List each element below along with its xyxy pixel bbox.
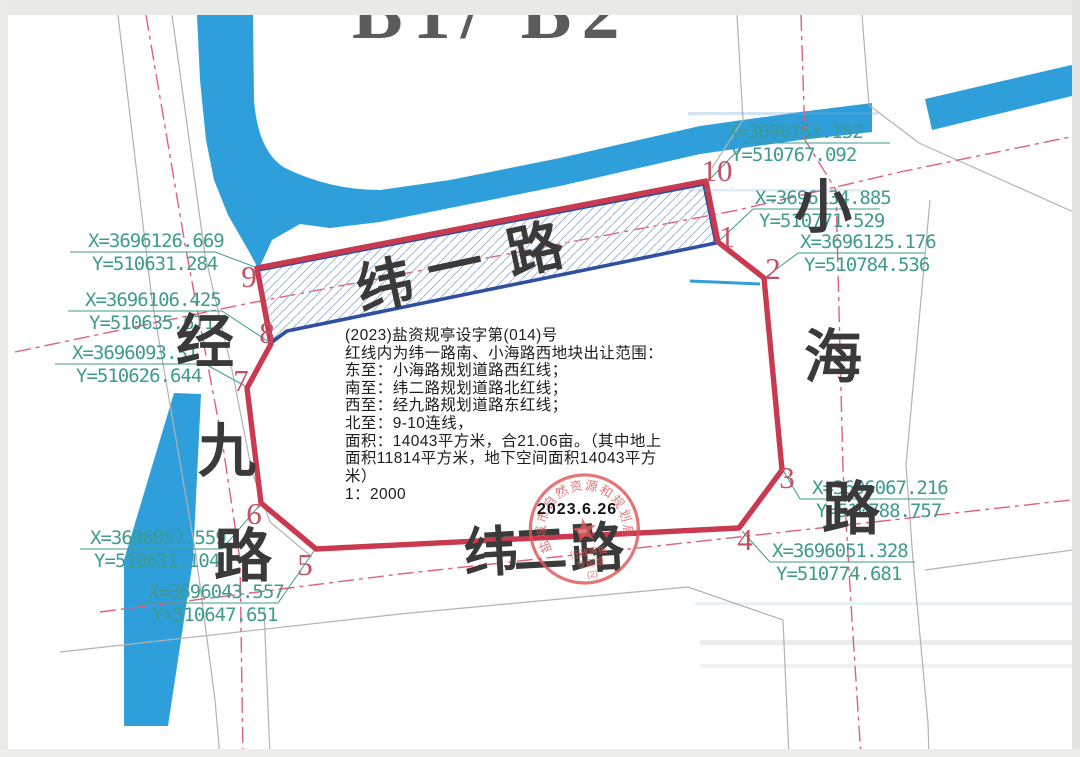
boundary-west: 西至：经九路规划道路东红线； <box>345 397 755 415</box>
official-seal: ★ 盐城市自然资源和规划局 行政审批 专用章 (2) <box>514 457 653 596</box>
coord-y-p10: Y=510767.092 <box>731 144 856 166</box>
vertex-number-p1: 1 <box>719 219 735 254</box>
vertex-number-p4: 4 <box>737 522 753 557</box>
coord-y-p2: Y=510784.536 <box>804 254 930 276</box>
road-label-south-char1: 纬 <box>463 525 520 582</box>
road-label-east-char1: 小 <box>794 179 852 237</box>
coord-y-p4: Y=510774.681 <box>776 563 902 585</box>
coord-x-p8: X=3696106.425 <box>85 289 221 311</box>
vertex-number-p5: 5 <box>297 547 313 582</box>
river-fragment <box>690 281 760 284</box>
coord-x-p10: X=3696153.152 <box>727 121 863 143</box>
road-label-north-char1: 纬 <box>352 253 418 319</box>
area-line-2: 面积11814平方米，地下空间面积14043平方 <box>345 450 755 468</box>
area-line-1: 面积：14043平方米，合21.06亩。（其中地上 <box>345 433 755 451</box>
road-label-west-char2: 九 <box>198 423 256 481</box>
plan-map-page: X=3696153.152Y=510767.092X=3696134.885Y=… <box>0 0 1080 757</box>
scan-margin-top <box>0 0 1080 15</box>
boundary-east: 东至：小海路规划道路西红线； <box>345 362 755 380</box>
river-northeast <box>925 63 1080 130</box>
road-label-north-char3: 路 <box>502 217 568 283</box>
vertex-number-p3: 3 <box>779 460 795 495</box>
vertex-number-p8: 8 <box>259 315 275 350</box>
road-edge-west-3 <box>264 608 270 757</box>
vertex-number-p2: 2 <box>765 251 781 286</box>
road-label-east-char3: 路 <box>822 481 880 539</box>
vertex-number-p7: 7 <box>233 363 249 398</box>
vertex-number-p10: 10 <box>702 153 733 188</box>
road-label-west-char3: 路 <box>214 528 272 586</box>
coord-x-p6: X=3696057.559 <box>90 527 226 549</box>
coord-x-p4: X=3696051.328 <box>772 540 908 562</box>
document-number: (2023)盐资规亭设字第(014)号 <box>345 327 755 345</box>
approval-date: 2023.6.26 <box>537 501 617 519</box>
road-label-west-char1: 经 <box>176 314 234 372</box>
scan-margin-right <box>1072 0 1080 757</box>
scan-margin-left <box>0 0 8 757</box>
scan-margin-bottom <box>0 749 1080 757</box>
coord-x-p9: X=3696126.669 <box>88 230 224 252</box>
road-label-north-char2: 一 <box>422 234 488 300</box>
coord-y-p5: Y=510647.651 <box>152 604 278 626</box>
road-edge-south-2 <box>925 549 1080 570</box>
coord-y-p9: Y=510631.284 <box>92 253 218 275</box>
boundary-south: 南至：纬二路规划道路北红线； <box>345 380 755 398</box>
coord-y-p6: Y=510631.104 <box>94 550 220 572</box>
road-label-east-char2: 海 <box>804 329 862 387</box>
redline-intro: 红线内为纬一路南、小海路西地块出让范围： <box>345 345 755 363</box>
seal-number: (2) <box>586 568 599 580</box>
boundary-north: 北至：9-10连线， <box>345 415 755 433</box>
vertex-number-p9: 9 <box>241 259 257 294</box>
